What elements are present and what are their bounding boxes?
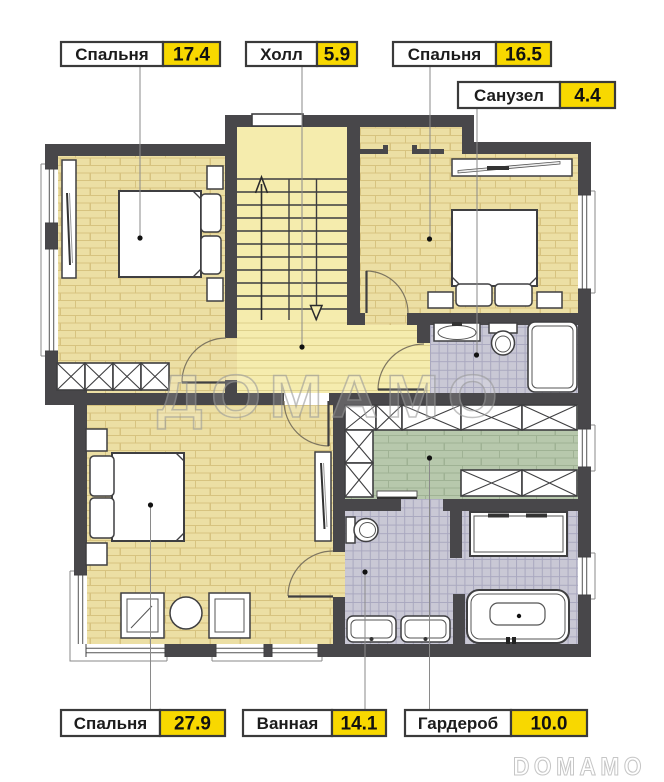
svg-text:DOMAMO: DOMAMO	[513, 753, 646, 781]
svg-text:17.4: 17.4	[173, 45, 210, 66]
svg-text:Спальня: Спальня	[75, 45, 148, 64]
svg-text:Санузел: Санузел	[474, 86, 544, 105]
svg-text:4.4: 4.4	[574, 86, 601, 107]
svg-text:16.5: 16.5	[505, 45, 542, 66]
svg-text:10.0: 10.0	[531, 714, 568, 735]
svg-text:Спальня: Спальня	[74, 714, 147, 733]
svg-text:Холл: Холл	[260, 45, 303, 64]
svg-text:5.9: 5.9	[324, 45, 350, 66]
svg-text:Спальня: Спальня	[408, 45, 481, 64]
svg-text:27.9: 27.9	[174, 714, 211, 735]
svg-text:ДОМАМО: ДОМАМО	[157, 363, 506, 430]
svg-text:Гардероб: Гардероб	[418, 714, 498, 733]
svg-text:14.1: 14.1	[341, 714, 378, 735]
svg-text:Ванная: Ванная	[257, 714, 319, 733]
